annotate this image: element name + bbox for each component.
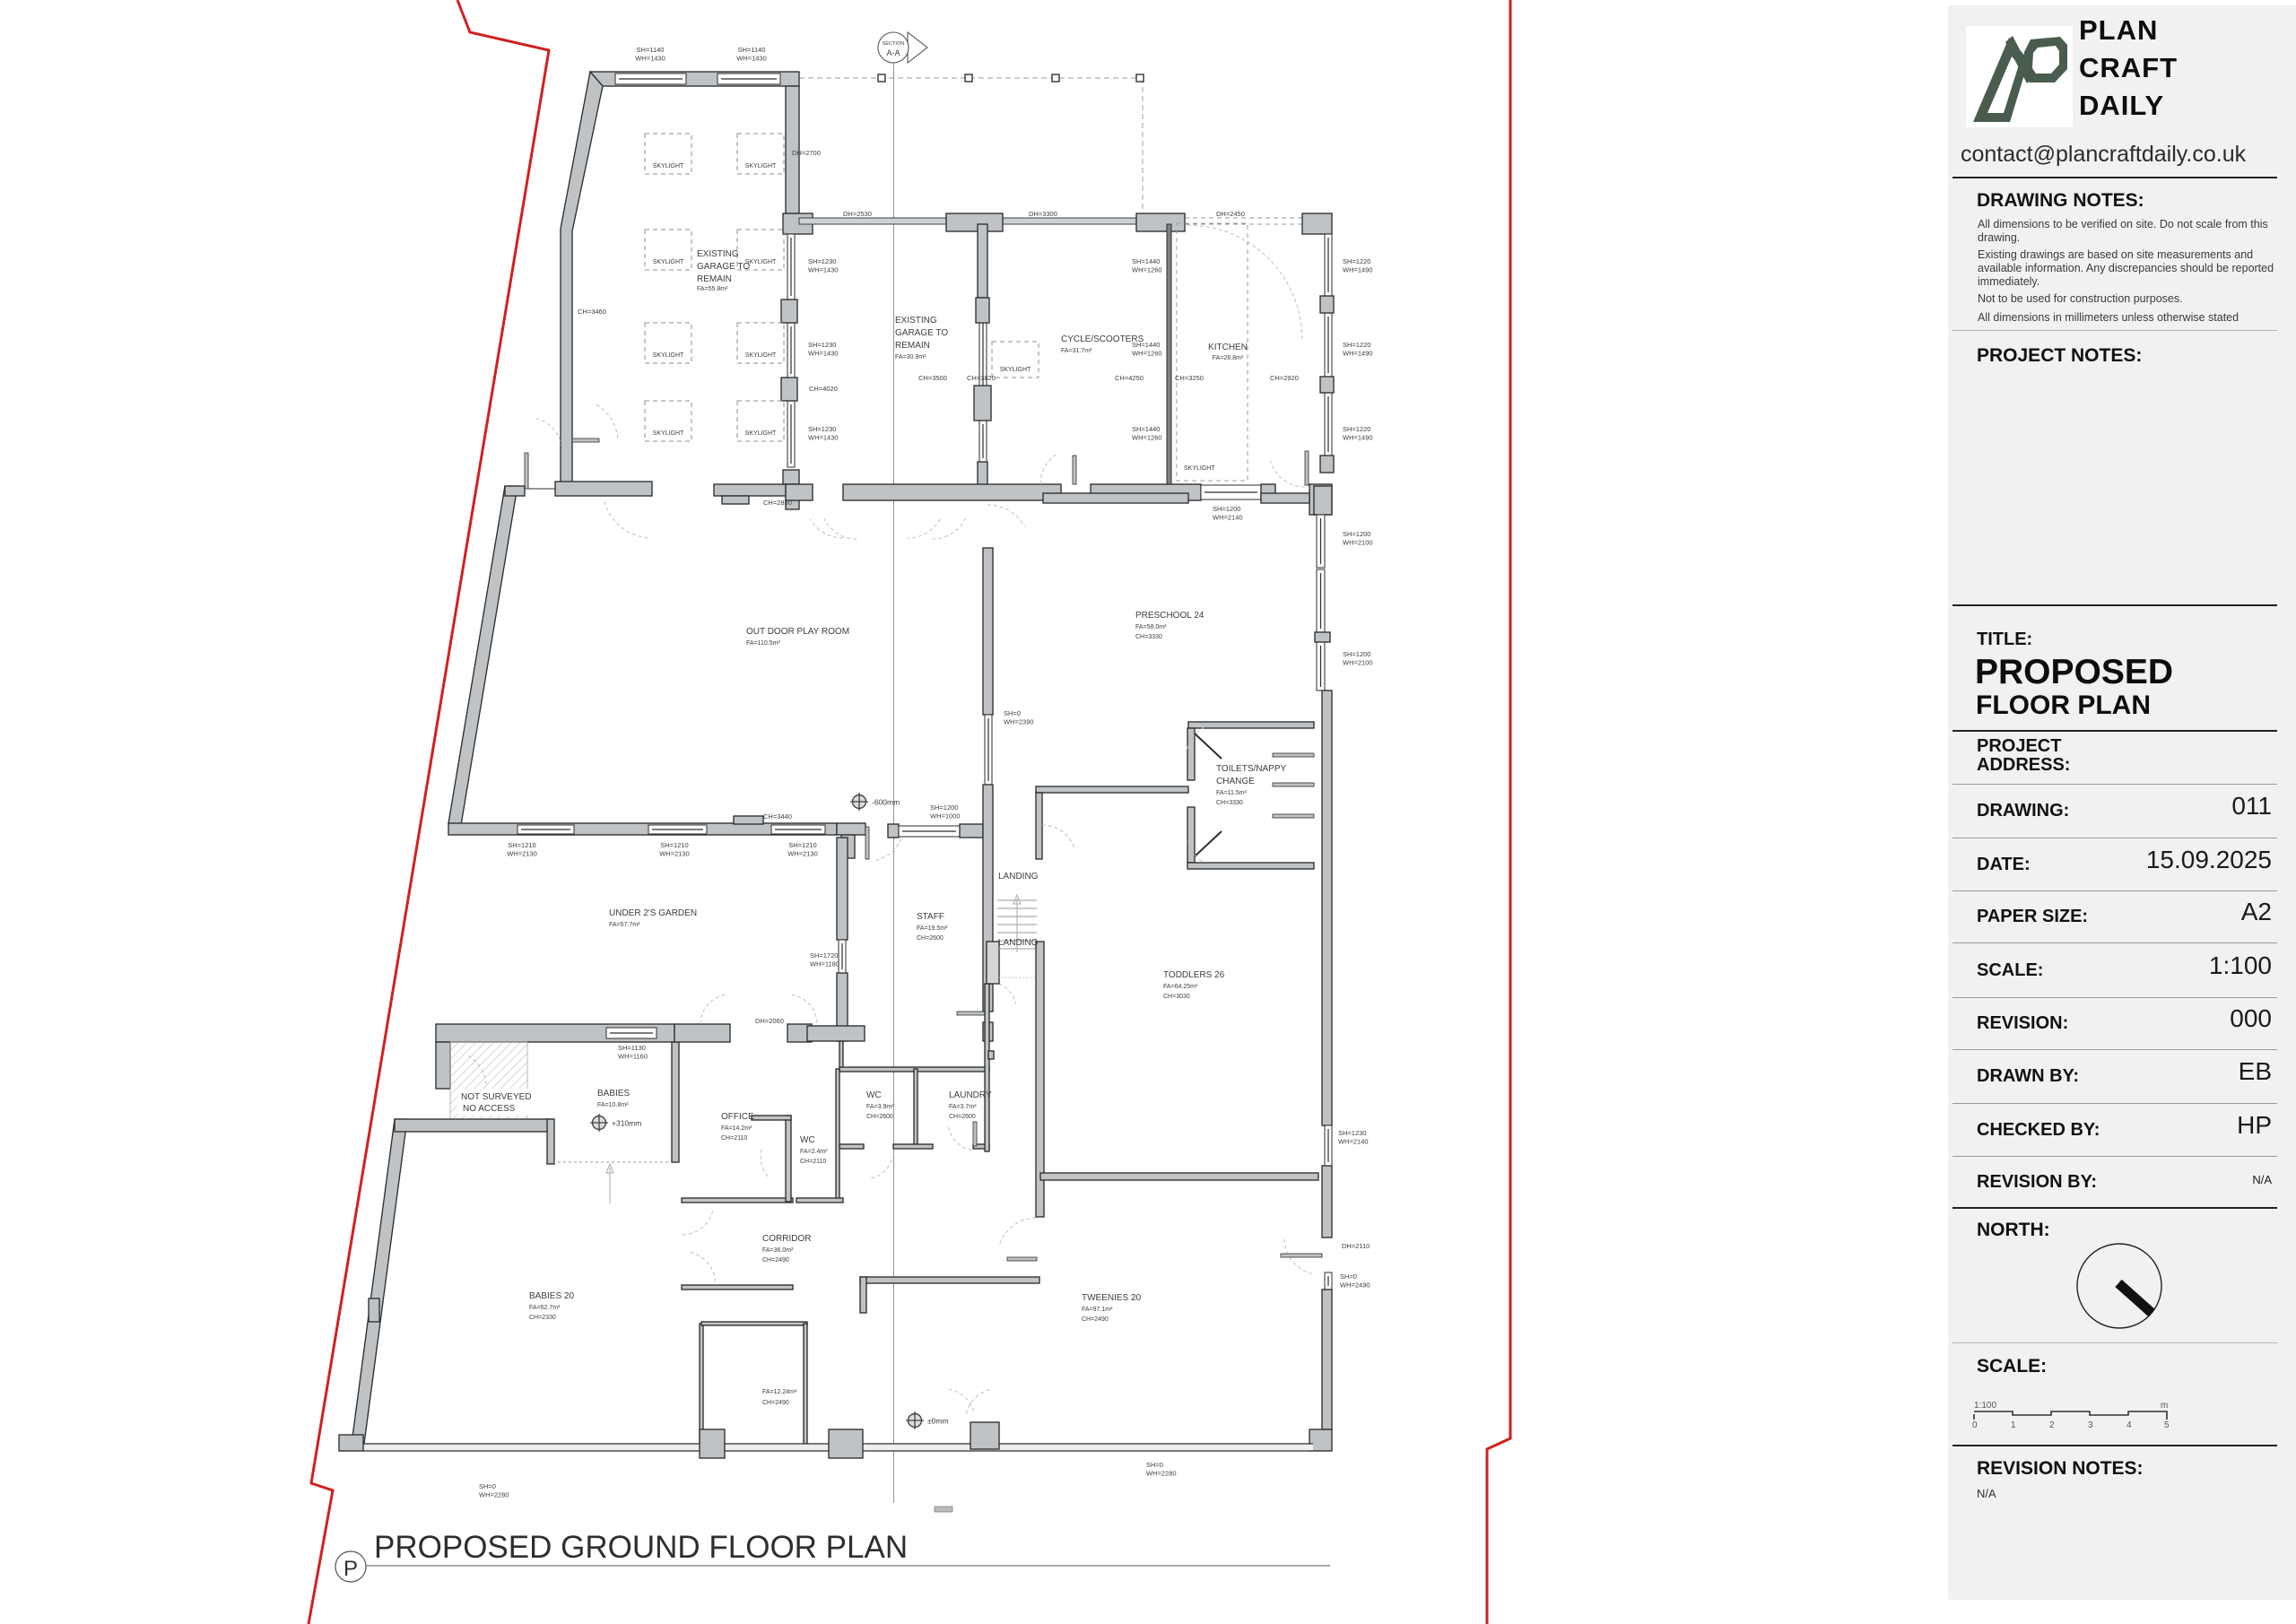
svg-text:1: 1 xyxy=(2011,1420,2016,1430)
svg-text:5: 5 xyxy=(2164,1420,2170,1430)
svg-text:4: 4 xyxy=(2126,1420,2132,1430)
svg-text:m: m xyxy=(2161,1401,2168,1411)
svg-text:0: 0 xyxy=(1972,1420,1978,1430)
svg-text:3: 3 xyxy=(2088,1420,2093,1430)
svg-text:1:100: 1:100 xyxy=(1974,1401,1996,1411)
svg-text:2: 2 xyxy=(2049,1420,2055,1430)
